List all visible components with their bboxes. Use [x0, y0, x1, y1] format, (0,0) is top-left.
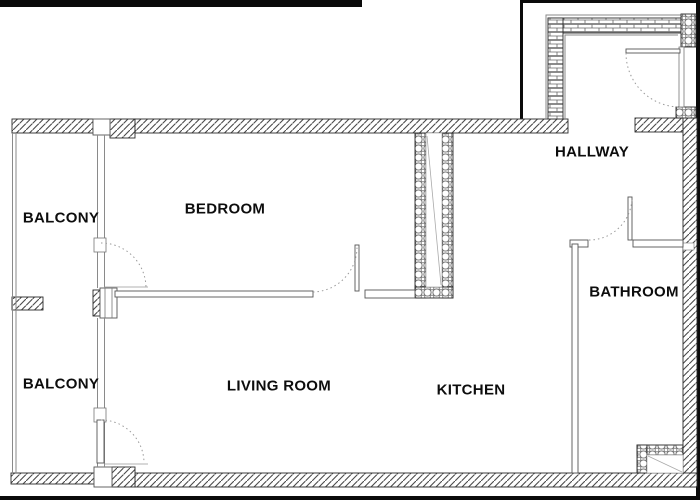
room-label-bedroom: BEDROOM	[185, 201, 265, 218]
bedroom-door-swing-arc	[313, 247, 357, 292]
kitchen-vent-shaft	[415, 133, 453, 298]
floor-plan-drawing	[0, 0, 700, 500]
bathroom-vent-shaft	[637, 445, 683, 473]
interior-partitions	[115, 240, 683, 473]
entry-door-leaf	[626, 49, 680, 53]
room-label-hallway: HALLWAY	[555, 144, 629, 161]
bedroom-door-leaf	[355, 245, 359, 291]
room-label-balcony-top: BALCONY	[23, 210, 99, 227]
bathroom-door-leaf	[628, 197, 632, 240]
entry-door	[626, 47, 684, 107]
balcony-door-living-leaf	[97, 420, 104, 463]
room-label-kitchen: KITCHEN	[437, 382, 506, 399]
balcony-door-bedroom-swing-arc	[101, 243, 146, 288]
bathroom-door	[589, 197, 632, 240]
entry-door-jamb	[679, 47, 684, 107]
balcony-door-bedroom	[101, 243, 148, 288]
right-wall-notch	[683, 243, 694, 250]
bedroom-door	[313, 245, 359, 292]
floor-plan: BALCONY BEDROOM HALLWAY BALCONY LIVING R…	[0, 0, 700, 500]
balcony-door-living-swing-arc	[101, 420, 144, 463]
entry-door-swing-arc	[626, 53, 680, 107]
room-label-living-room: LIVING ROOM	[227, 378, 331, 395]
room-label-bathroom: BATHROOM	[589, 284, 679, 301]
room-label-balcony-bottom: BALCONY	[23, 376, 99, 393]
bathroom-door-swing-arc	[589, 197, 632, 240]
vestibule-brick-walls	[548, 18, 681, 119]
